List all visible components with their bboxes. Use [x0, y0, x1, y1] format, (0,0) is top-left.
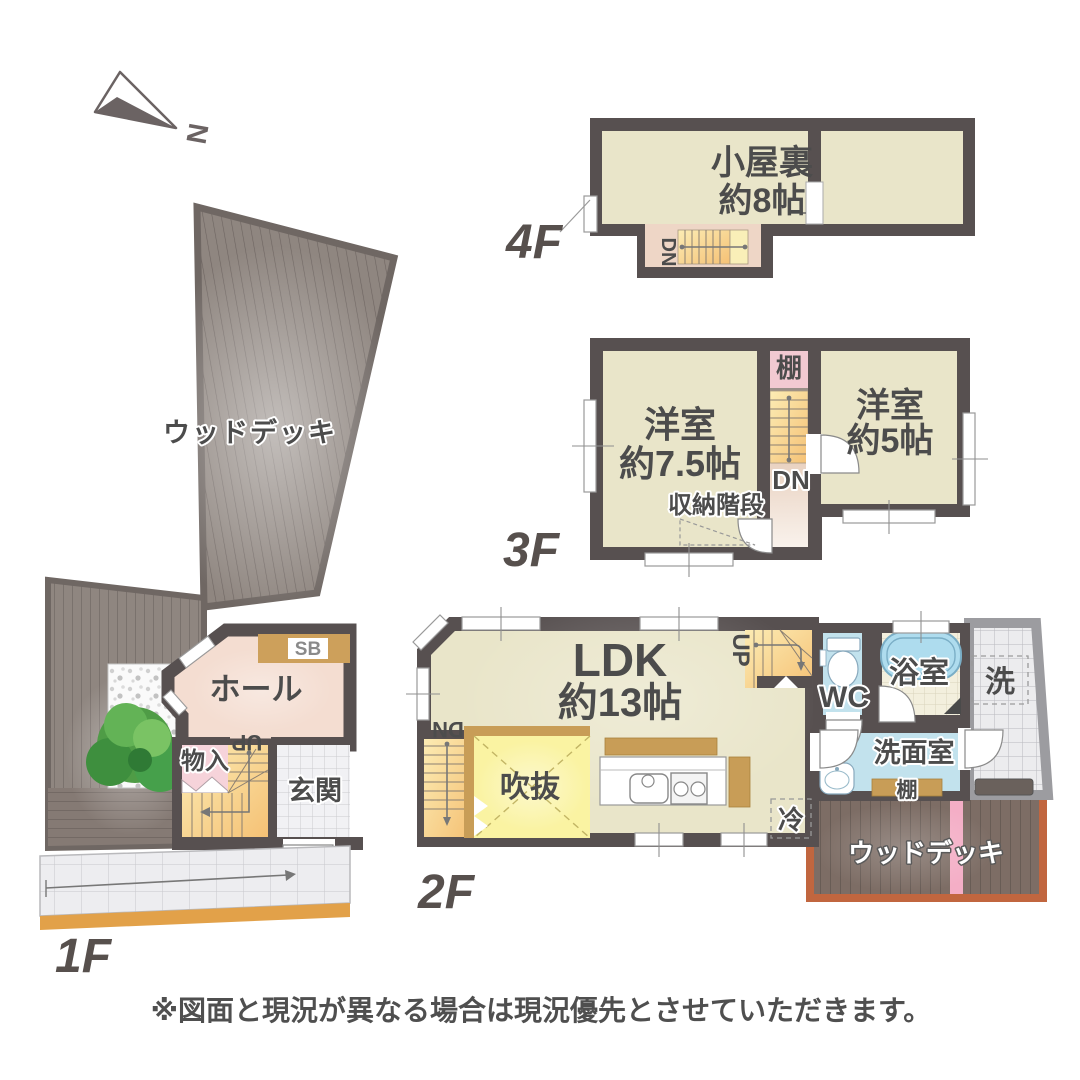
shoe-box-label: SB — [295, 639, 321, 660]
stairs-4f-dn-label: DN — [657, 238, 679, 267]
floor-3f: 棚 DN 洋室 約7.5帖 洋室 約5帖 収納階段 3F — [503, 338, 988, 577]
stairs-3f — [770, 391, 808, 463]
bath-label: 浴室 — [889, 656, 949, 690]
floor-label-2f: 2F — [417, 866, 476, 919]
storage-label: 物入 — [181, 748, 229, 775]
storage-stairs-label: 収納階段 — [668, 491, 764, 519]
floor-label-3f: 3F — [503, 524, 561, 577]
laundry-label: 洗 — [985, 666, 1015, 699]
floor-label-1f: 1F — [55, 930, 113, 983]
laundry-area — [969, 623, 1048, 795]
disclaimer-text: ※図面と現況が異なる場合は現況優先とさせていただきます。 — [151, 994, 931, 1026]
stairs-2f-down — [420, 730, 470, 837]
north-arrow-icon: N — [95, 72, 214, 146]
attic-size-label: 約8帖 — [719, 182, 806, 220]
attic-name-label: 小屋裏 — [711, 144, 814, 182]
ldk-size-label: 約13帖 — [558, 681, 683, 725]
wc-label: WC — [819, 681, 869, 714]
hall-label: ホール — [210, 672, 303, 707]
wood-deck-1f — [145, 207, 405, 615]
entrance-label: 玄関 — [288, 775, 342, 806]
stairs-2f-up-label: UP — [727, 633, 754, 666]
wood-deck-2f-label: ウッドデッキ — [848, 838, 1004, 868]
approach-walkway — [40, 846, 350, 930]
stairs-1f-up-label: UP — [232, 730, 263, 755]
shelf-3f-label: 棚 — [776, 353, 802, 383]
void-label: 吹抜 — [500, 771, 560, 804]
stairs-3f-dn-label: DN — [772, 465, 810, 495]
fridge-label: 冷 — [778, 805, 804, 835]
ldk-label: LDK — [573, 634, 668, 686]
west-room-name: 洋室 — [644, 404, 716, 445]
stairs-2f-up — [745, 630, 812, 688]
shelf-2f-label: 棚 — [897, 778, 918, 802]
wood-deck-1f-label: ウッドデッキ — [163, 417, 337, 448]
floor-plan-drawing: N DN 小屋裏 約8帖 4F — [0, 0, 1080, 1080]
washroom-label: 洗面室 — [874, 737, 955, 768]
east-room-size: 約5帖 — [847, 422, 934, 460]
stairs-4f-down — [678, 230, 748, 264]
floor-2f: UP DN 吹抜 — [406, 590, 1048, 919]
north-letter: N — [180, 121, 214, 146]
floor-4f: DN 小屋裏 約8帖 4F — [505, 118, 975, 278]
floor-1f: SB UP — [40, 207, 405, 983]
east-room-name: 洋室 — [856, 386, 924, 425]
floor-plan-page: N DN 小屋裏 約8帖 4F — [0, 0, 1080, 1080]
floor-label-4f: 4F — [505, 216, 564, 269]
stairs-2f-dn-label: DN — [432, 717, 464, 742]
west-room-size: 約7.5帖 — [619, 443, 741, 484]
